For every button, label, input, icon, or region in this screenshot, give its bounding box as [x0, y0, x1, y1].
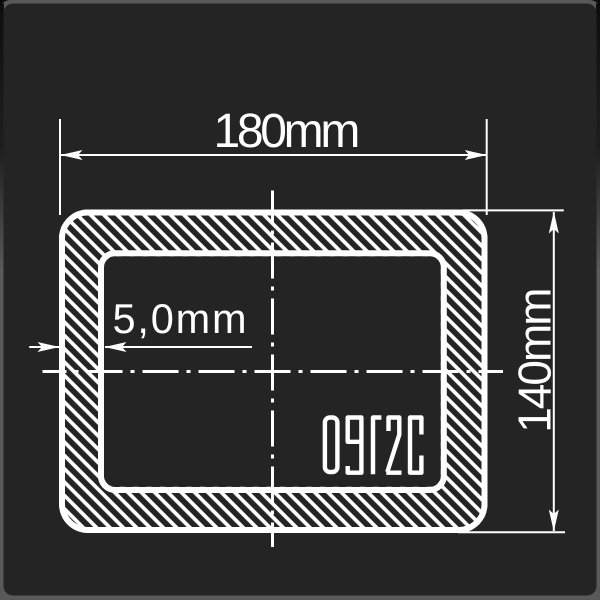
- svg-text:180mm: 180mm: [214, 105, 358, 158]
- svg-text:140mm: 140mm: [509, 289, 561, 432]
- svg-text:5,0mm: 5,0mm: [113, 295, 249, 342]
